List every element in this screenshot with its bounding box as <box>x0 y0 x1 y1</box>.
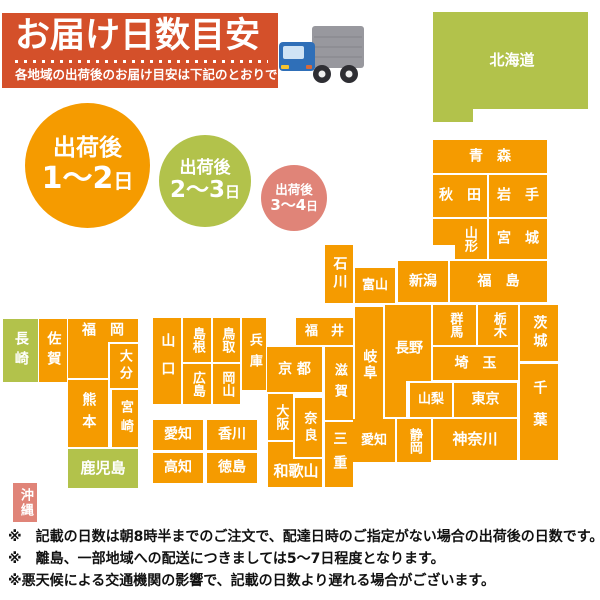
legend-unit: 日 <box>306 199 318 213</box>
pref-label-chiba: 千葉 <box>532 380 547 444</box>
pref-label-ishikawa: 石川 <box>332 256 347 292</box>
pref-label-shimane: 島根 <box>190 327 204 353</box>
pref-label-ibaraki: 茨城 <box>532 315 547 351</box>
header-banner: お届け日数目安 各地域の出荷後のお届け目安は下記のとおりです <box>2 13 278 88</box>
pref-label-kagawa: 香川 <box>218 428 246 443</box>
footnotes: ※ 記載の日数は朝8時半までのご注文で、配達日時のご指定がない場合の出荷後の日数… <box>8 529 600 595</box>
pref-label-wakayama: 和歌山 <box>273 464 318 480</box>
pref-label-nagasaki: 長崎 <box>13 331 28 371</box>
pref-label-kagoshima: 鹿児島 <box>80 461 125 477</box>
pref-label-okayama: 岡山 <box>220 371 234 397</box>
pref-label-shiga: 滋賀 <box>332 363 346 405</box>
pref-label-nara: 奈良 <box>302 411 316 445</box>
pref-label-fukushima: 福 島 <box>478 274 520 289</box>
pref-label-kochi: 高知 <box>164 461 192 476</box>
pref-label-tochigi: 栃木 <box>491 312 505 338</box>
page-title: お届け日数目安 <box>15 16 272 56</box>
legend-range: 1〜2日 <box>42 162 134 196</box>
legend-range: 2〜3日 <box>170 178 240 204</box>
legend-unit: 日 <box>225 183 240 201</box>
pref-label-kanagawa: 神奈川 <box>452 432 497 448</box>
footnote-line: ※ 離島、一部地域への配送につきましては5〜7日程度となります。 <box>8 551 600 567</box>
pref-label-iwate: 岩 手 <box>497 189 539 204</box>
pref-label-saga: 佐賀 <box>46 331 61 371</box>
pref-label-niigata: 新潟 <box>409 274 437 289</box>
pref-label-kumamoto: 熊本 <box>81 392 96 436</box>
pref-label-tokushima: 徳島 <box>218 461 246 476</box>
legend-unit: 日 <box>113 169 133 193</box>
pref-label-okinawa: 沖縄 <box>18 488 32 518</box>
pref-label-hiroshima: 広島 <box>190 371 204 397</box>
pref-label-kyoto: 京 都 <box>278 362 311 377</box>
pref-label-yamanashi: 山梨 <box>418 393 444 407</box>
pref-label-gunma: 群馬 <box>448 312 462 338</box>
footnote-line: ※ 記載の日数は朝8時半までのご注文で、配達日時のご指定がない場合の出荷後の日数… <box>8 529 600 545</box>
japan-schematic-map: 北海道青 森秋 田岩 手山形宮 城新潟福 島石川富山福 井岐阜長野群馬栃木茨城埼… <box>0 0 600 600</box>
footnote-line: ※悪天候による交通機関の影響で、記載の日数より遅れる場合がございます。 <box>8 573 600 589</box>
legend-circle-3-4-days: 出荷後 3〜4日 <box>261 165 327 231</box>
pref-label-aichi: 愛知 <box>361 434 387 448</box>
legend-prefix: 出荷後 <box>53 136 122 162</box>
legend-circle-2-3-days: 出荷後 2〜3日 <box>159 135 251 227</box>
pref-label-fukui: 福 井 <box>305 325 344 339</box>
pref-label-toyama: 富山 <box>362 279 388 293</box>
legend-prefix: 出荷後 <box>180 159 231 178</box>
pref-label-miyazaki: 宮崎 <box>118 400 132 438</box>
pref-hokkaido <box>433 12 473 122</box>
pref-label-hyogo: 兵庫 <box>247 333 261 375</box>
page-subtitle: 各地域の出荷後のお届け目安は下記のとおりです <box>15 67 272 82</box>
pref-label-shizuoka: 静岡 <box>407 428 421 454</box>
delivery-days-infographic: 北海道青 森秋 田岩 手山形宮 城新潟福 島石川富山福 井岐阜長野群馬栃木茨城埼… <box>0 0 600 600</box>
pref-label-miyagi: 宮 城 <box>497 232 539 247</box>
legend-circle-1-2-days: 出荷後 1〜2日 <box>25 103 150 228</box>
legend-range: 3〜4日 <box>270 197 317 214</box>
pref-label-yamaguchi: 山口 <box>160 333 175 389</box>
delivery-truck-icon <box>276 22 368 86</box>
pref-label-osaka: 大阪 <box>274 404 288 430</box>
pref-label-fukuoka: 福 岡 <box>82 324 124 339</box>
pref-label-oita: 大分 <box>117 349 131 383</box>
pref-label-akita: 秋 田 <box>439 189 481 204</box>
pref-label-tokyo: 東京 <box>472 393 500 408</box>
dotted-divider <box>15 60 268 63</box>
pref-nagano <box>385 305 406 417</box>
pref-label-nagano: 長野 <box>395 342 423 357</box>
pref-label-yamagata: 山形 <box>462 226 476 252</box>
pref-label-ehime: 愛知 <box>164 428 192 443</box>
pref-label-mie: 三重 <box>332 431 347 479</box>
legend-prefix: 出荷後 <box>275 183 313 197</box>
pref-label-tottori: 鳥取 <box>220 327 234 353</box>
pref-label-saitama: 埼 玉 <box>455 356 497 371</box>
pref-label-hokkaido: 北海道 <box>489 53 534 69</box>
pref-label-aomori: 青 森 <box>469 149 511 164</box>
pref-label-gifu: 岐阜 <box>362 349 377 381</box>
